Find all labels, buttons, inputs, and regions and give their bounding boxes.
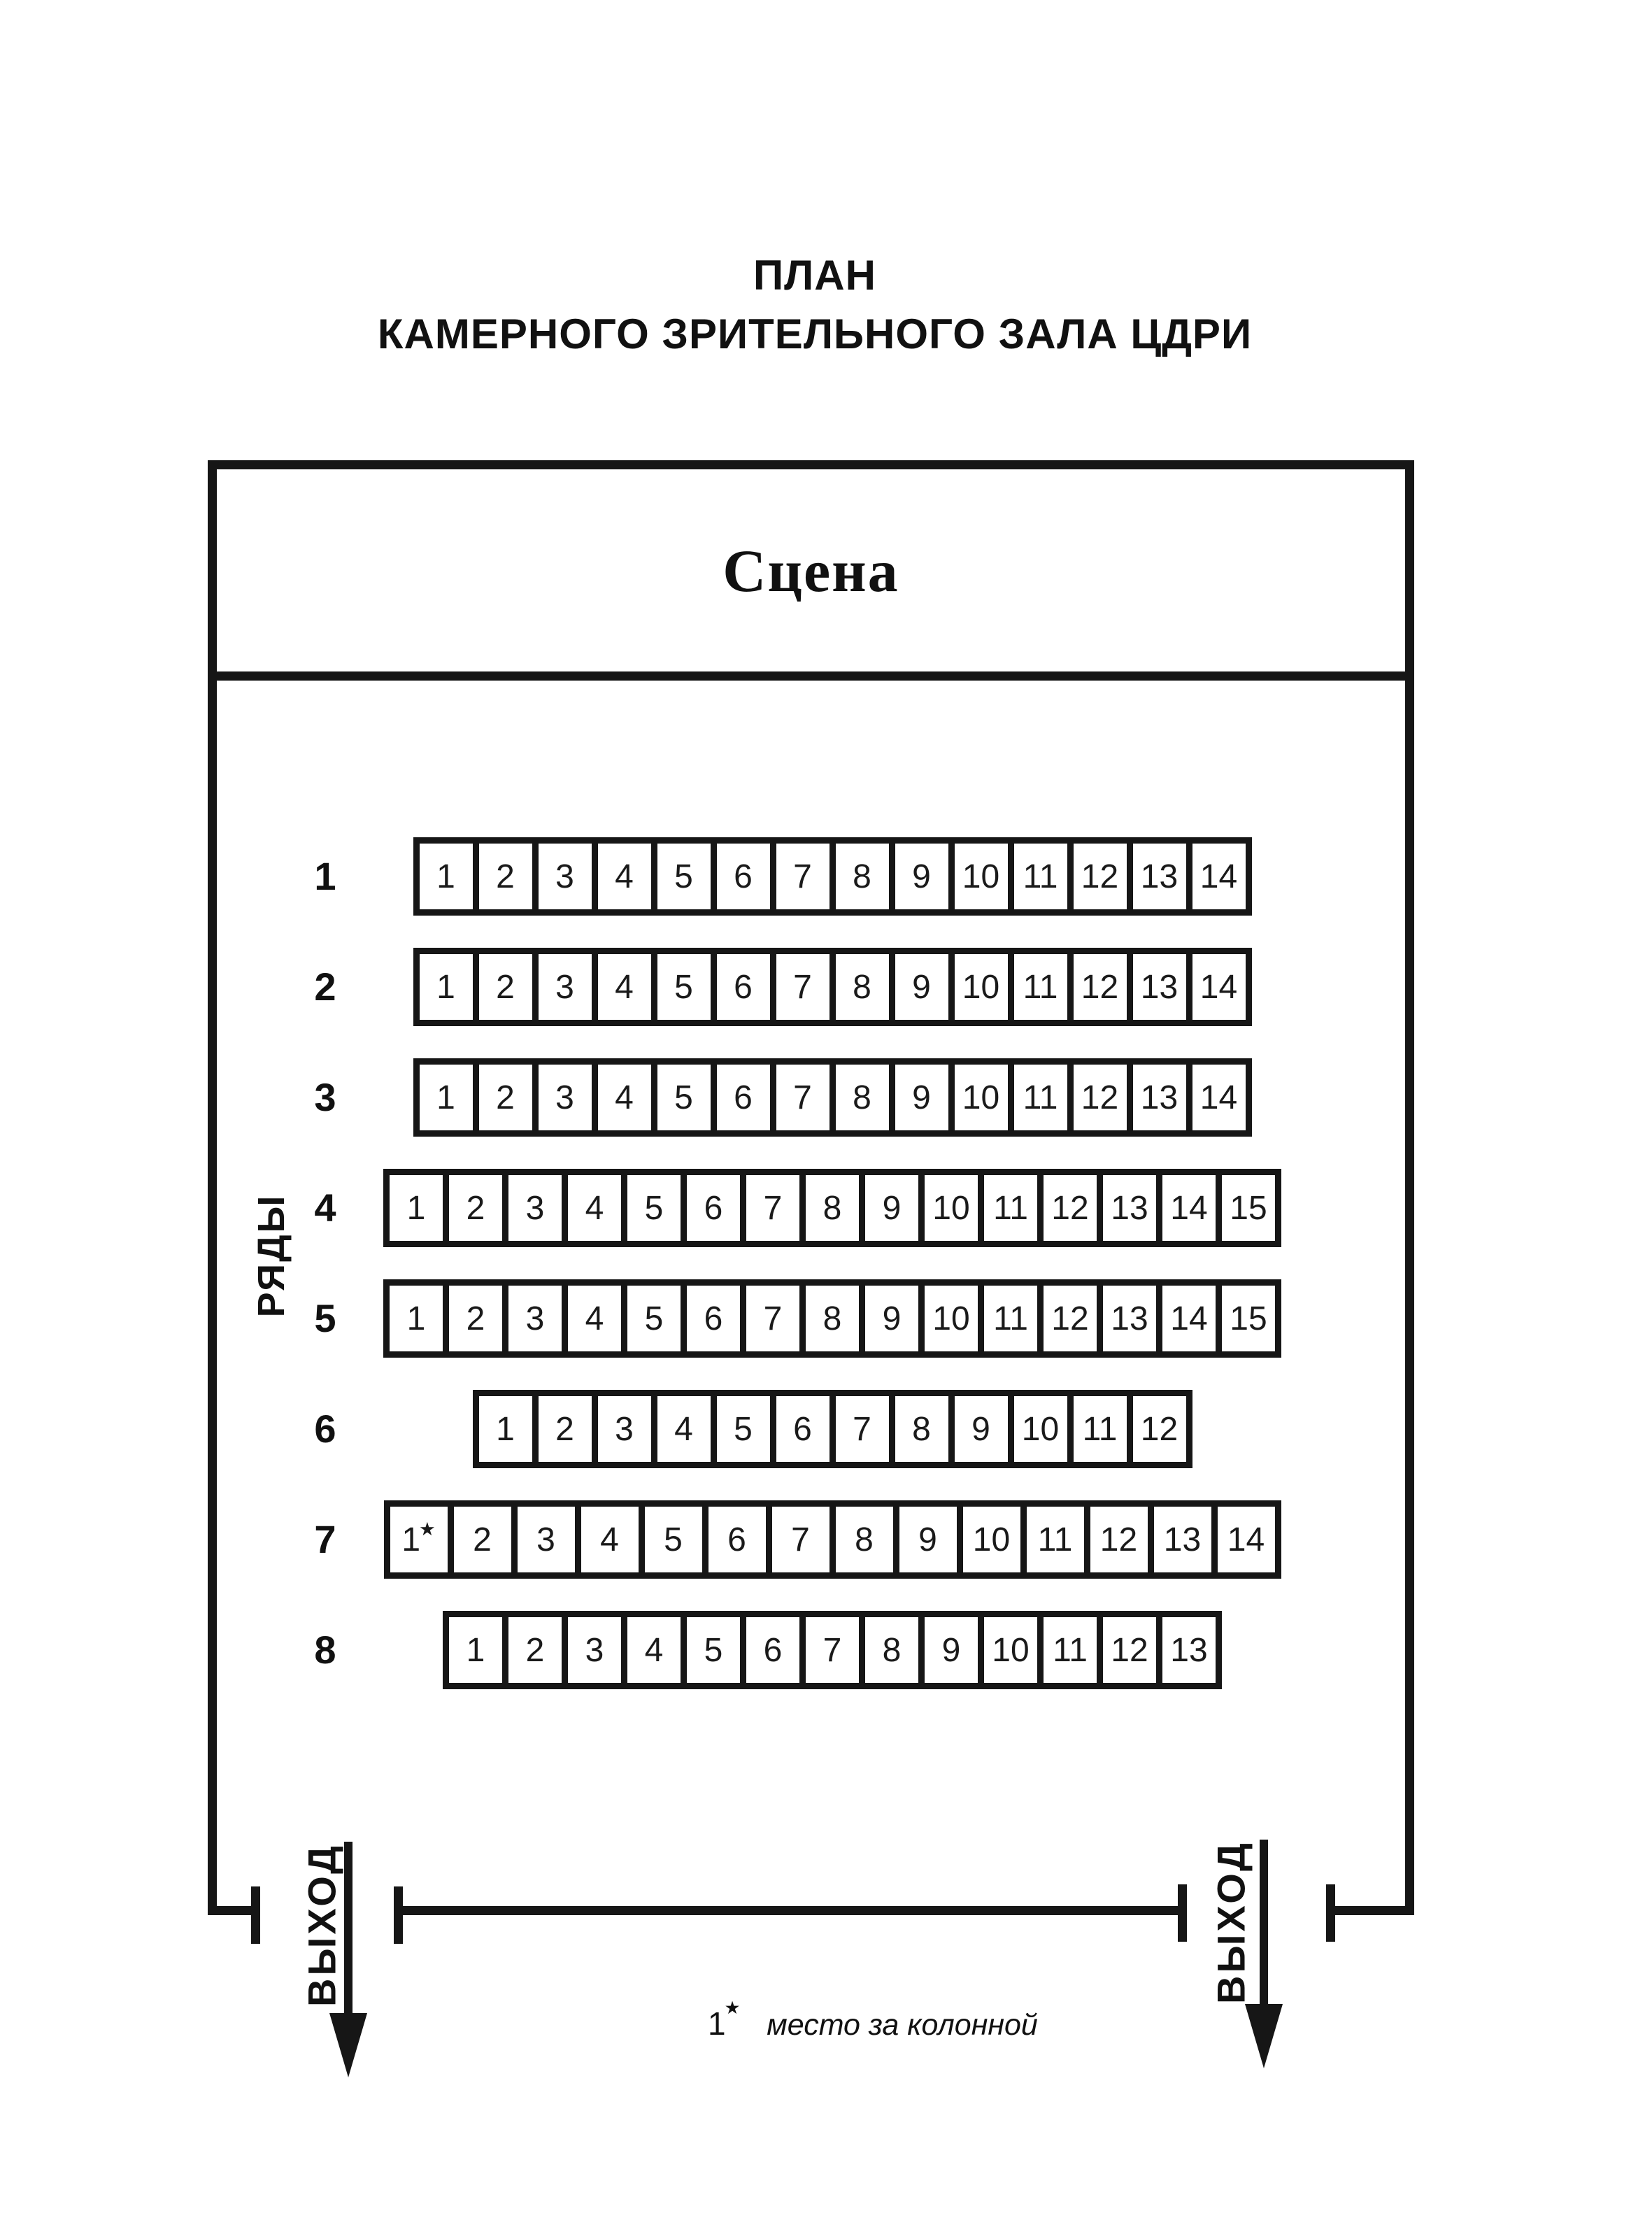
seat-row4-1: 1	[383, 1169, 449, 1247]
seat-row7-11: 11	[1020, 1500, 1090, 1579]
seat-row8-1: 1	[443, 1611, 508, 1689]
seat-row4-15: 15	[1216, 1169, 1281, 1247]
seat-row7-8: 8	[829, 1500, 899, 1579]
seat-row2-14: 14	[1186, 948, 1252, 1026]
seat-row7-7: 7	[766, 1500, 836, 1579]
seat-row6-8: 8	[889, 1390, 955, 1468]
seat-row1-11: 11	[1008, 837, 1074, 916]
seat-row5-8: 8	[799, 1279, 865, 1358]
seat-row-7: 1★234567891011121314	[384, 1500, 1281, 1579]
seat-row5-2: 2	[443, 1279, 508, 1358]
seat-row2-2: 2	[473, 948, 539, 1026]
seat-row4-6: 6	[681, 1169, 746, 1247]
seat-row2-11: 11	[1008, 948, 1074, 1026]
seat-row5-14: 14	[1156, 1279, 1222, 1358]
row-number-1: 1	[290, 848, 360, 904]
seat-row2-3: 3	[532, 948, 598, 1026]
stage-label: Сцена	[722, 536, 899, 606]
seat-row3-4: 4	[592, 1058, 657, 1137]
seat-row1-12: 12	[1067, 837, 1133, 916]
seat-row3-5: 5	[651, 1058, 717, 1137]
seat-row2-5: 5	[651, 948, 717, 1026]
seat-row7-5: 5	[639, 1500, 708, 1579]
seat-row6-3: 3	[592, 1390, 657, 1468]
seat-row7-2: 2	[448, 1500, 518, 1579]
seat-row1-10: 10	[948, 837, 1014, 916]
seat-row7-13: 13	[1148, 1500, 1218, 1579]
seat-row6-5: 5	[711, 1390, 776, 1468]
row-number-3: 3	[290, 1069, 360, 1125]
exit-arrow-right-head-icon	[1245, 2004, 1283, 2068]
page-title: ПЛАН КАМЕРНОГО ЗРИТЕЛЬНОГО ЗАЛА ЦДРИ	[0, 246, 1630, 364]
seat-row5-5: 5	[621, 1279, 687, 1358]
seat-row8-6: 6	[740, 1611, 806, 1689]
seat-row6-9: 9	[948, 1390, 1014, 1468]
seat-row1-3: 3	[532, 837, 598, 916]
seat-row5-9: 9	[859, 1279, 925, 1358]
seat-row6-6: 6	[770, 1390, 836, 1468]
seat-row7-1: 1★	[384, 1500, 454, 1579]
seat-row3-7: 7	[770, 1058, 836, 1137]
wall-end-cap-4	[1326, 1884, 1335, 1942]
footnote-text: место за колонной	[767, 2008, 1038, 2042]
seat-row6-4: 4	[651, 1390, 717, 1468]
seat-row7-3: 3	[511, 1500, 581, 1579]
seat-row8-3: 3	[562, 1611, 627, 1689]
seat-row5-1: 1	[383, 1279, 449, 1358]
seat-row4-13: 13	[1097, 1169, 1162, 1247]
seat-row1-6: 6	[711, 837, 776, 916]
seat-row1-7: 7	[770, 837, 836, 916]
seat-row1-13: 13	[1127, 837, 1192, 916]
seat-row2-8: 8	[829, 948, 895, 1026]
seat-row5-13: 13	[1097, 1279, 1162, 1358]
seat-row1-2: 2	[473, 837, 539, 916]
seat-row-3: 1234567891011121314	[413, 1058, 1252, 1137]
seat-row3-1: 1	[413, 1058, 479, 1137]
bottom-wall-left-segment	[208, 1906, 256, 1915]
seat-row2-13: 13	[1127, 948, 1192, 1026]
seat-row8-8: 8	[859, 1611, 925, 1689]
seat-row4-11: 11	[978, 1169, 1044, 1247]
seat-row1-9: 9	[889, 837, 955, 916]
seat-row1-5: 5	[651, 837, 717, 916]
seat-row3-6: 6	[711, 1058, 776, 1137]
seat-row2-9: 9	[889, 948, 955, 1026]
row-number-7: 7	[290, 1512, 360, 1568]
bottom-wall-right-segment	[1335, 1906, 1414, 1915]
wall-end-cap-2	[394, 1886, 403, 1944]
seat-row4-8: 8	[799, 1169, 865, 1247]
seat-row3-13: 13	[1127, 1058, 1192, 1137]
seat-row5-12: 12	[1037, 1279, 1103, 1358]
seat-row7-6: 6	[702, 1500, 772, 1579]
seat-row7-10: 10	[957, 1500, 1027, 1579]
seat-row6-2: 2	[532, 1390, 598, 1468]
seat-row8-9: 9	[918, 1611, 984, 1689]
seat-row3-11: 11	[1008, 1058, 1074, 1137]
footnote: 1★место за колонной	[708, 2005, 1038, 2042]
seat-row7-14: 14	[1211, 1500, 1281, 1579]
seat-row-4: 123456789101112131415	[383, 1169, 1281, 1247]
row-number-8: 8	[290, 1622, 360, 1678]
seat-row7-12: 12	[1084, 1500, 1154, 1579]
star-marker: ★	[725, 1998, 741, 2018]
page-title-line2: КАМЕРНОГО ЗРИТЕЛЬНОГО ЗАЛА ЦДРИ	[0, 305, 1630, 364]
seat-row4-9: 9	[859, 1169, 925, 1247]
seat-row4-5: 5	[621, 1169, 687, 1247]
seat-row3-9: 9	[889, 1058, 955, 1137]
seat-row8-10: 10	[978, 1611, 1044, 1689]
seat-row6-7: 7	[829, 1390, 895, 1468]
exit-arrow-left-shaft	[344, 1842, 353, 2029]
seat-row2-10: 10	[948, 948, 1014, 1026]
seat-row3-3: 3	[532, 1058, 598, 1137]
seat-row-8: 12345678910111213	[443, 1611, 1222, 1689]
seat-row5-7: 7	[740, 1279, 806, 1358]
seat-row4-2: 2	[443, 1169, 508, 1247]
wall-end-cap-3	[1178, 1884, 1187, 1942]
seat-row8-4: 4	[621, 1611, 687, 1689]
row-number-5: 5	[290, 1291, 360, 1346]
seat-row1-4: 4	[592, 837, 657, 916]
exit-label-left: ВЫХОД	[299, 1843, 345, 2007]
seat-row8-12: 12	[1097, 1611, 1162, 1689]
seat-row5-3: 3	[502, 1279, 568, 1358]
seat-row8-2: 2	[502, 1611, 568, 1689]
seat-row7-9: 9	[893, 1500, 963, 1579]
exit-label-right: ВЫХОД	[1209, 1840, 1254, 2004]
seat-row1-1: 1	[413, 837, 479, 916]
page-title-line1: ПЛАН	[0, 246, 1630, 305]
seat-row5-10: 10	[918, 1279, 984, 1358]
seat-row2-12: 12	[1067, 948, 1133, 1026]
seat-row5-4: 4	[562, 1279, 627, 1358]
seat-row4-3: 3	[502, 1169, 568, 1247]
exit-arrow-left-head-icon	[329, 2013, 367, 2077]
seat-row-2: 1234567891011121314	[413, 948, 1252, 1026]
seat-row2-7: 7	[770, 948, 836, 1026]
seat-row7-4: 4	[575, 1500, 645, 1579]
wall-end-cap-1	[251, 1886, 260, 1944]
seat-row4-12: 12	[1037, 1169, 1103, 1247]
seat-row3-2: 2	[473, 1058, 539, 1137]
seat-row4-4: 4	[562, 1169, 627, 1247]
seat-row6-10: 10	[1008, 1390, 1074, 1468]
seat-row1-8: 8	[829, 837, 895, 916]
rows-axis-label: РЯДЫ	[250, 1194, 293, 1318]
seat-row2-1: 1	[413, 948, 479, 1026]
stage-area: Сцена	[217, 469, 1405, 681]
seat-row-1: 1234567891011121314	[413, 837, 1252, 916]
exit-arrow-right-shaft	[1260, 1840, 1268, 2020]
seat-row8-13: 13	[1156, 1611, 1222, 1689]
seat-row-5: 123456789101112131415	[383, 1279, 1281, 1358]
seat-row8-5: 5	[681, 1611, 746, 1689]
seat-row5-15: 15	[1216, 1279, 1281, 1358]
seat-row4-14: 14	[1156, 1169, 1222, 1247]
seat-row3-10: 10	[948, 1058, 1014, 1137]
hall-plan-page: ПЛАН КАМЕРНОГО ЗРИТЕЛЬНОГО ЗАЛА ЦДРИ Сце…	[0, 0, 1652, 2239]
bottom-wall-middle-segment	[403, 1906, 1182, 1915]
row-number-4: 4	[290, 1180, 360, 1236]
footnote-marker: 1★	[708, 2005, 740, 2042]
seat-row8-11: 11	[1037, 1611, 1103, 1689]
seat-row2-4: 4	[592, 948, 657, 1026]
row-number-6: 6	[290, 1401, 360, 1457]
seat-row4-10: 10	[918, 1169, 984, 1247]
seat-row8-7: 7	[799, 1611, 865, 1689]
seat-row2-6: 6	[711, 948, 776, 1026]
seat-row4-7: 7	[740, 1169, 806, 1247]
seat-row1-14: 14	[1186, 837, 1252, 916]
seat-row-6: 123456789101112	[473, 1390, 1192, 1468]
seat-row5-11: 11	[978, 1279, 1044, 1358]
seat-row6-12: 12	[1127, 1390, 1192, 1468]
seat-row5-6: 6	[681, 1279, 746, 1358]
seat-row3-12: 12	[1067, 1058, 1133, 1137]
seat-row6-11: 11	[1067, 1390, 1133, 1468]
row-number-2: 2	[290, 959, 360, 1015]
seat-row6-1: 1	[473, 1390, 539, 1468]
seat-row3-14: 14	[1186, 1058, 1252, 1137]
seat-row3-8: 8	[829, 1058, 895, 1137]
